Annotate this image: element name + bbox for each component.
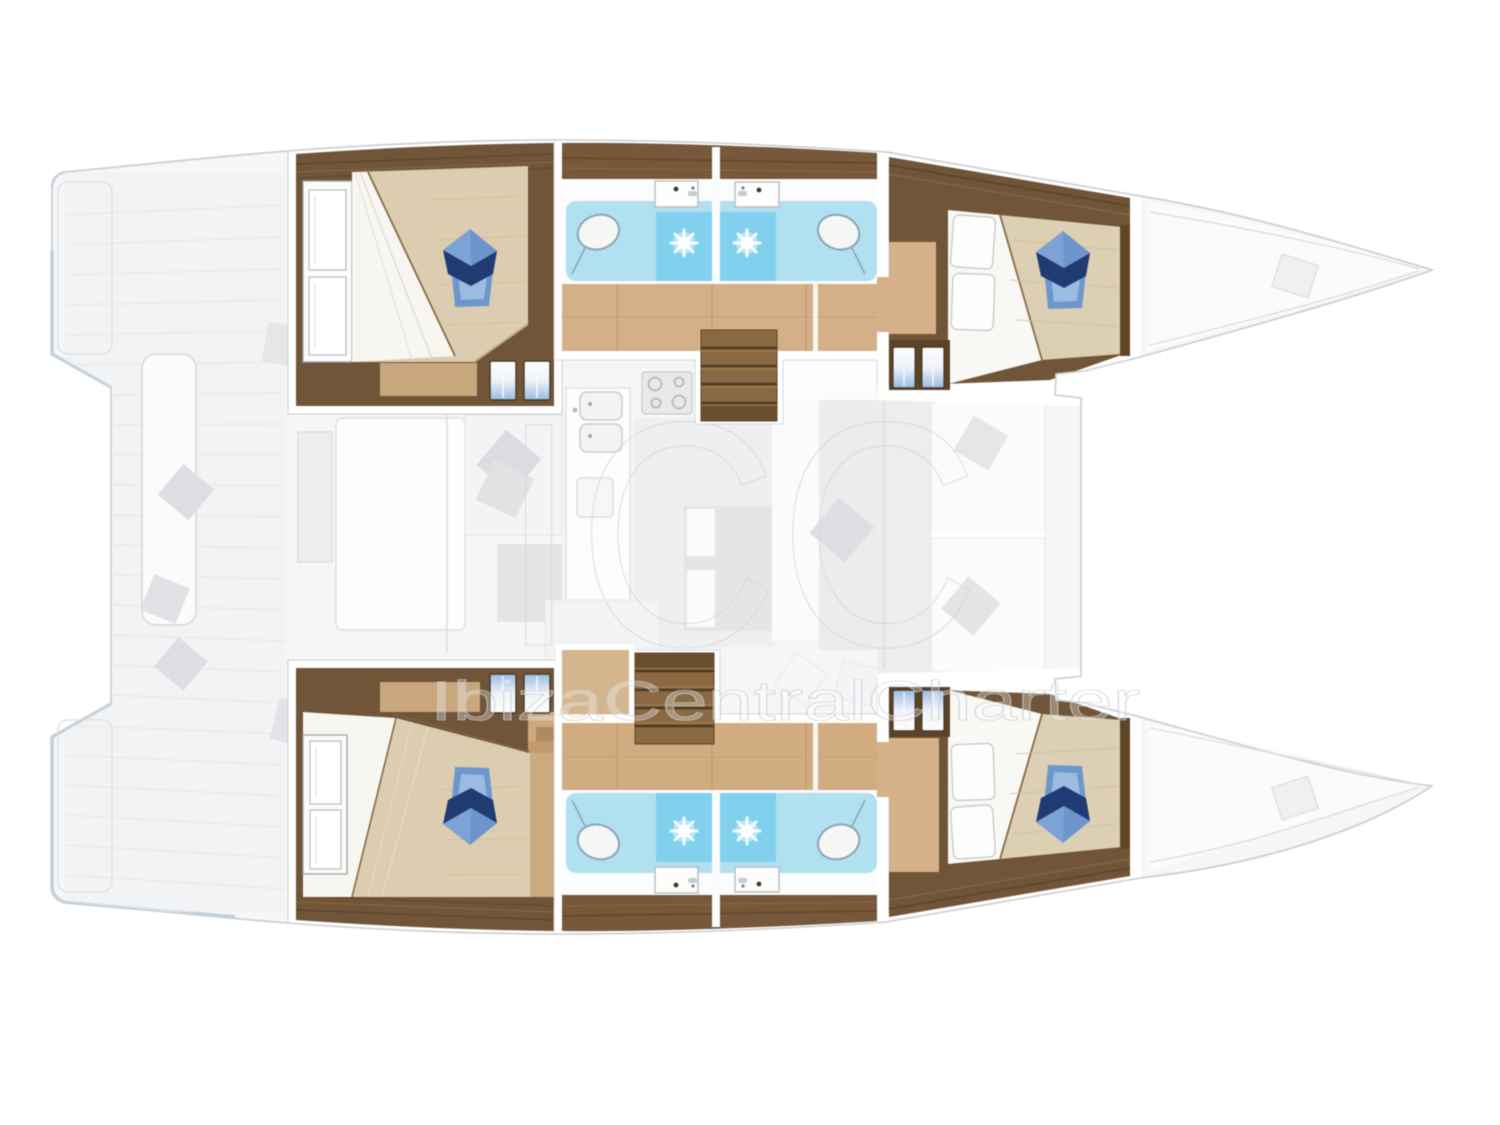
svg-text:IbizaCentralCharter: IbizaCentralCharter (430, 669, 1140, 732)
